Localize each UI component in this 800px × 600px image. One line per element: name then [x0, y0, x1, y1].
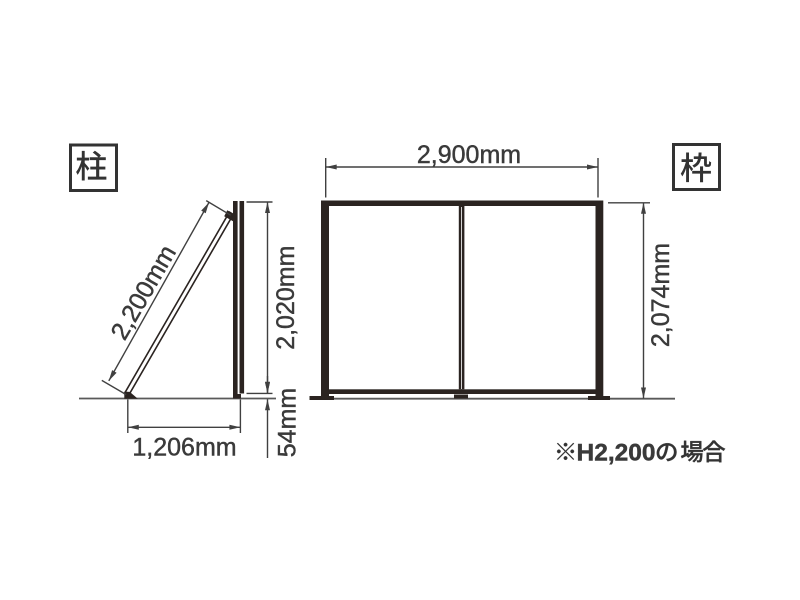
svg-text:54mm: 54mm	[274, 388, 302, 457]
svg-text:2,900mm: 2,900mm	[417, 141, 521, 169]
svg-text:2,020mm: 2,020mm	[272, 246, 300, 350]
svg-text:2,074mm: 2,074mm	[647, 243, 675, 347]
svg-text:1,206mm: 1,206mm	[132, 433, 236, 461]
svg-text:2,200mm: 2,200mm	[105, 240, 181, 344]
svg-text:H2,200: H2,200	[577, 439, 656, 466]
